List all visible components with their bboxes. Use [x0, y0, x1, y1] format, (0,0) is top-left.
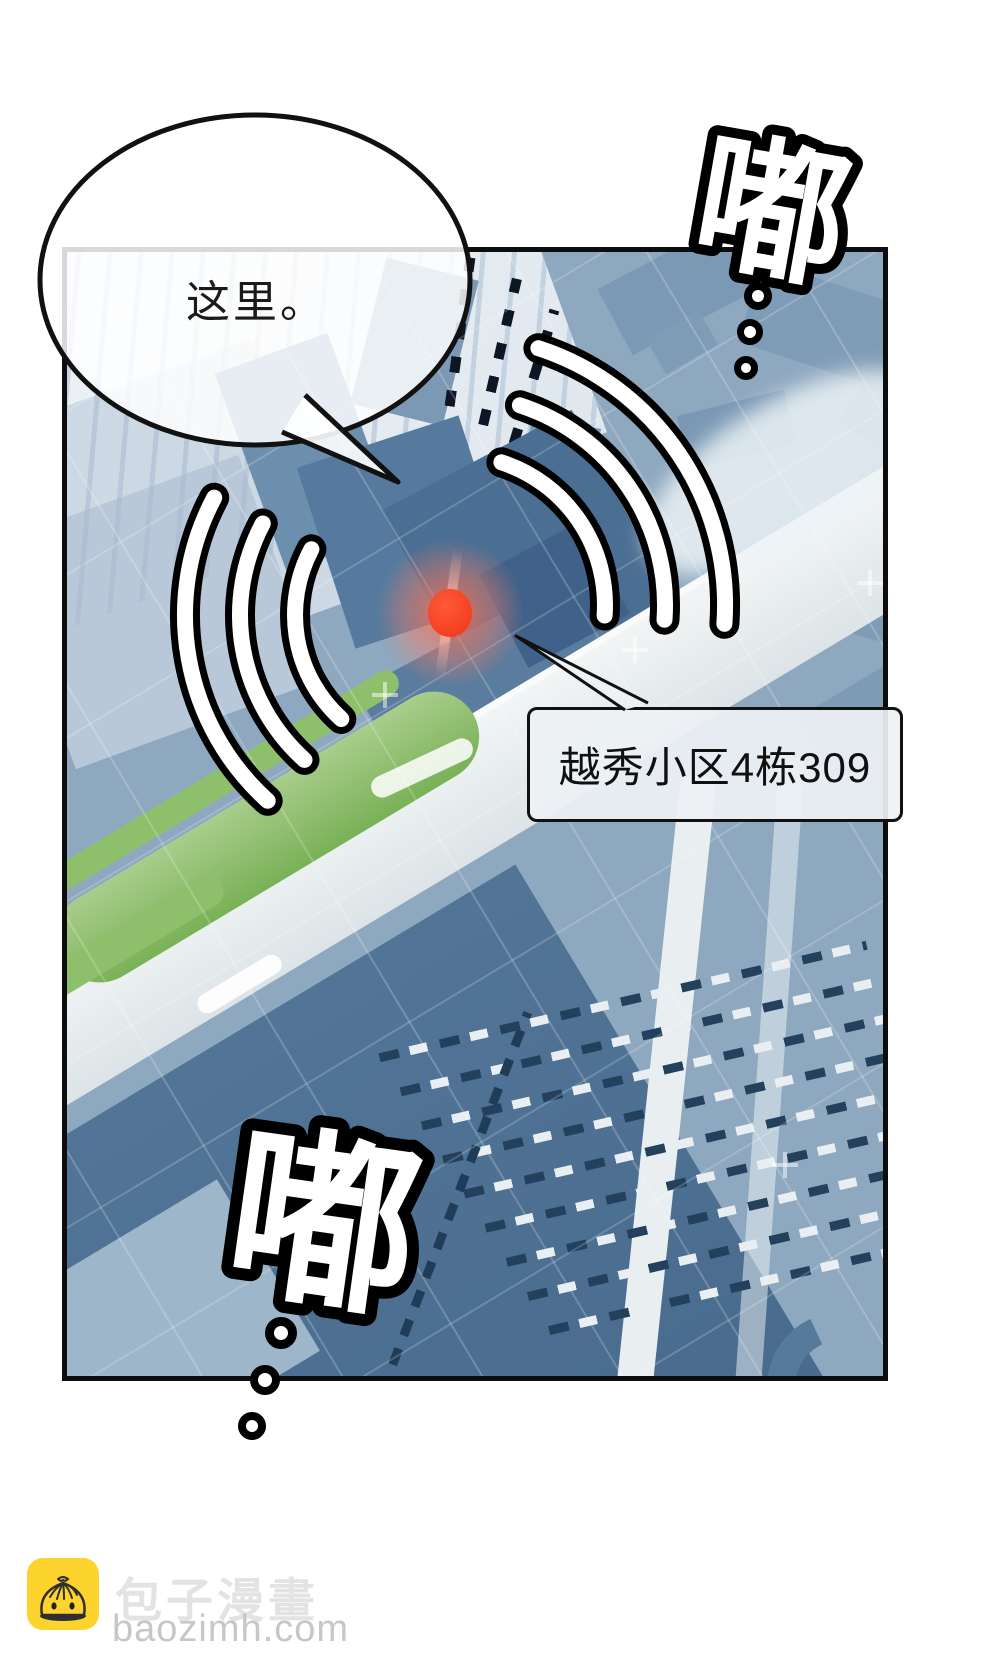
- trail-dot: [737, 319, 763, 345]
- map-label-text: 越秀小区4栋309: [559, 734, 871, 795]
- baozi-logo-icon: [27, 1558, 99, 1630]
- sfx-top-right: 嘟: [640, 85, 920, 315]
- sfx-bottom-text: 嘟: [215, 1107, 433, 1343]
- trail-dot: [265, 1317, 297, 1349]
- watermark-site-url[interactable]: baozimh.com: [112, 1608, 349, 1651]
- sfx-top-text: 嘟: [682, 116, 861, 310]
- trail-dot: [250, 1365, 280, 1395]
- speech-bubble-text: 这里。: [186, 266, 327, 330]
- watermark: 包子漫畫 baozimh.com: [27, 1556, 447, 1656]
- comic-page: 这里。 嘟 越秀小区4栋309 嘟 包子漫畫 baozimh.com: [0, 0, 1000, 1667]
- trail-dot: [734, 356, 758, 380]
- trail-dot: [238, 1412, 266, 1440]
- map-label-pointer: [505, 625, 675, 725]
- trail-dot: [744, 282, 772, 310]
- sfx-bottom-left: 嘟: [175, 1055, 475, 1345]
